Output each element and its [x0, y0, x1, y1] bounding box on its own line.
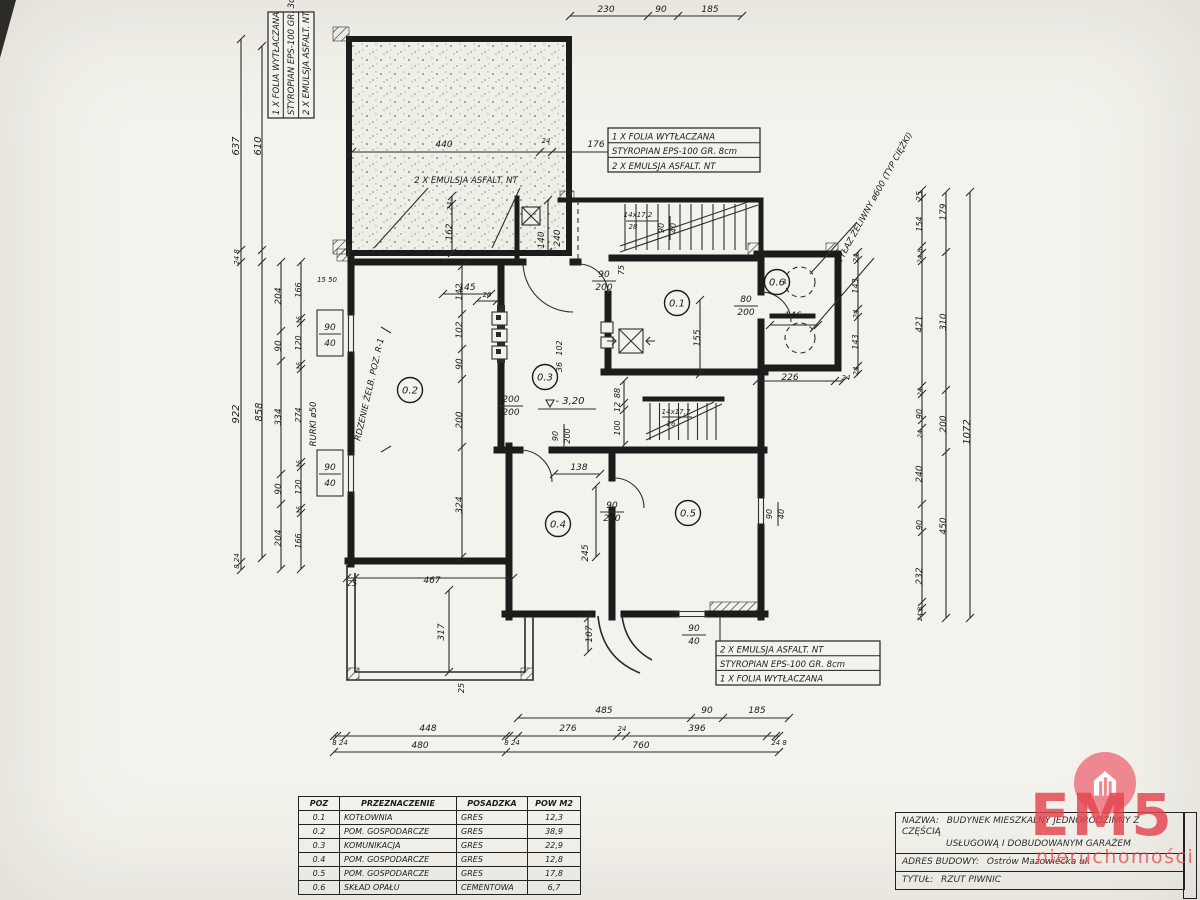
dim-label: 90 — [655, 5, 667, 15]
dim-label: 40 — [324, 339, 336, 349]
table-header: POZ — [299, 797, 340, 811]
note-line: STYROPIAN EPS-100 GR. 8cm — [720, 660, 845, 670]
dim-label: 25 — [347, 579, 357, 588]
dim-label: 155 — [693, 329, 703, 346]
dim-label: 24 8 — [916, 249, 924, 263]
dim-label: 450 — [939, 517, 949, 534]
table-cell: 0.5 — [299, 867, 340, 881]
dim-label: 396 — [688, 724, 705, 734]
dim-label: 200 — [603, 514, 620, 524]
dim-label: 40 — [777, 509, 786, 519]
floor-plan-drawing: 1 X FOLIA WYTŁACZANA STYROPIAN EPS-100 G… — [0, 0, 1200, 900]
garage-note: 2 X EMULSJA ASFALT. NT — [414, 176, 518, 186]
dim-label: 226 — [781, 373, 798, 383]
dim-label: 8 24 — [332, 739, 348, 747]
dim-label: 120 — [294, 335, 303, 350]
dim-label: 485 — [595, 706, 612, 716]
table-cell: GRES — [457, 839, 528, 853]
table-cell: GRES — [457, 867, 528, 881]
dim-label: 24 — [852, 310, 860, 319]
dim-label: 334 — [274, 408, 284, 425]
dim-label: 28 — [629, 223, 638, 231]
table-cell: CEMENTOWA — [457, 881, 528, 895]
dim-label: 120 — [294, 479, 303, 494]
table-cell: 12,3 — [528, 811, 581, 825]
manhole-circle — [785, 323, 815, 353]
dim-label: 15 50 — [317, 276, 338, 284]
dim-label: 467 — [423, 576, 440, 586]
nazwa-label: NAZWA: — [902, 816, 939, 826]
note-line: 2 X EMULSJA ASFALT. NT — [720, 646, 824, 656]
dim-label: 90 — [688, 624, 700, 634]
dim-label: 88 — [613, 388, 622, 398]
dim-label: 440 — [435, 140, 452, 150]
dim-label: 90 — [324, 323, 336, 333]
table-cell: KOTŁOWNIA — [340, 811, 457, 825]
table-header: POSADZKA — [457, 797, 528, 811]
table-cell: 0.6 — [299, 881, 340, 895]
table-cell: 22,9 — [528, 839, 581, 853]
dim-label: 922 — [231, 404, 242, 423]
em5-watermark-text: EM5 — [1030, 786, 1174, 844]
dim-label: 480 — [411, 741, 428, 751]
dim-label: 90 — [551, 431, 560, 441]
dim-label: 80 — [740, 295, 752, 305]
dim-label: 200 — [595, 283, 612, 293]
dim-label: 90 — [701, 706, 713, 716]
note-top-left: 1 X FOLIA WYTŁACZANA STYROPIAN EPS-100 G… — [268, 0, 314, 118]
dim-label: 90 — [274, 483, 284, 495]
table-cell: GRES — [457, 853, 528, 867]
table-cell: 38,9 — [528, 825, 581, 839]
em5-watermark-subtitle: nieruchomości — [1036, 846, 1194, 868]
table-cell: KOMUNIKACJA — [340, 839, 457, 853]
dim-label: 24 8 — [233, 249, 241, 265]
dim-label: 200 — [939, 415, 949, 432]
note-line: STYROPIAN EPS-100 GR. 8cm — [612, 147, 737, 157]
tytul-label: TYTUŁ: — [902, 875, 933, 885]
dim-label: 176 — [587, 140, 604, 150]
dim-label: 230 — [597, 5, 614, 15]
dim-label: 200 — [502, 395, 519, 405]
table-cell: SKŁAD OPAŁU — [340, 881, 457, 895]
dim-label: 25 — [457, 683, 466, 693]
table-cell: 0.3 — [299, 839, 340, 853]
fraction-bars — [319, 216, 778, 635]
room-schedule-table: POZPRZEZNACZENIEPOSADZKAPOW M2 0.1KOTŁOW… — [298, 796, 581, 895]
table-cell: POM. GOSPODARCZE — [340, 853, 457, 867]
dim-label: 310 — [939, 313, 949, 330]
dim-label: 204 — [274, 529, 284, 546]
room-label-0.5: 0.5 — [680, 509, 696, 520]
dim-label: 185 — [748, 706, 765, 716]
title-block-title-row: TYTUŁ: RZUT PIWNIC — [896, 872, 1184, 889]
dim-label: 8 24 — [233, 553, 241, 569]
dim-label: 12 — [613, 402, 622, 412]
dim-label: 858 — [254, 402, 265, 421]
table-header: PRZEZNACZENIE — [340, 797, 457, 811]
dim-label: 90 — [455, 358, 465, 370]
dim-label: 102 — [555, 340, 564, 355]
terrace-outline — [347, 565, 652, 680]
dim-label: 154 — [915, 216, 924, 231]
room-label-0.6: 0.6 — [769, 278, 785, 289]
adres-label: ADRES BUDOWY: — [902, 857, 979, 867]
note-bottom: 2 X EMULSJA ASFALT. NT STYROPIAN EPS-100… — [716, 641, 880, 685]
dim-label: 421 — [915, 315, 925, 332]
rdzenie-label: RDZENIE ŻELB. POZ. R-1 — [352, 337, 386, 442]
dim-label: 20 — [483, 291, 492, 299]
dim-label: 245 — [581, 544, 591, 561]
dim-label: 166 — [294, 533, 303, 548]
dim-label: 143 — [851, 278, 860, 293]
scanned-floor-plan-page: 1 X FOLIA WYTŁACZANA STYROPIAN EPS-100 G… — [0, 0, 1200, 900]
dim-label: 162 — [445, 223, 455, 240]
dim-label: 14x17,2 — [624, 211, 653, 219]
table-row: 0.5POM. GOSPODARCZEGRES17,8 — [299, 867, 581, 881]
dim-label: 102 — [455, 321, 465, 338]
rurki-label: RURKI ø50 — [309, 402, 319, 447]
table-row: 0.3KOMUNIKACJAGRES22,9 — [299, 839, 581, 853]
table-row: 0.2POM. GOSPODARCZEGRES38,9 — [299, 825, 581, 839]
dim-label: 24 — [618, 725, 627, 733]
dim-label: 200 — [455, 411, 465, 428]
table-cell: 0.4 — [299, 853, 340, 867]
dim-label: 24 8 — [771, 739, 787, 747]
note-line: 1 X FOLIA WYTŁACZANA — [720, 675, 823, 685]
dim-label: 204 — [274, 287, 284, 304]
table-row: 0.6SKŁAD OPAŁUCEMENTOWA6,7 — [299, 881, 581, 895]
table-cell: GRES — [457, 825, 528, 839]
dim-label: 1072 — [962, 419, 973, 444]
dim-label: 25 — [915, 191, 924, 201]
table-row: 0.4POM. GOSPODARCZEGRES12,8 — [299, 853, 581, 867]
dim-label: 200 — [502, 408, 519, 418]
dim-label: 15 — [295, 362, 303, 370]
dim-label: 90 — [657, 223, 666, 233]
dim-label: 24 — [446, 202, 454, 211]
dim-label: 24 — [852, 367, 860, 376]
room-label-0.4: 0.4 — [550, 520, 566, 531]
table-cell: 12,8 — [528, 853, 581, 867]
dim-label: 200 — [737, 308, 754, 318]
dim-label: 232 — [915, 567, 925, 584]
table-cell: 6,7 — [528, 881, 581, 895]
note-line: 1 X FOLIA WYTŁACZANA — [612, 133, 715, 143]
note-top-mid: 1 X FOLIA WYTŁACZANA STYROPIAN EPS-100 G… — [608, 128, 760, 172]
dim-label: 610 — [253, 136, 264, 155]
room-label-0.2: 0.2 — [402, 386, 418, 397]
level-label: - 3,20 — [555, 396, 584, 407]
dim-label: 24 — [916, 388, 924, 396]
table-cell: 17,8 — [528, 867, 581, 881]
dim-label: 15 — [295, 506, 303, 514]
dim-label: 24 — [542, 137, 551, 145]
dim-label: 276 — [559, 724, 576, 734]
dim-label: 324 — [455, 496, 465, 513]
dim-label: 90 — [915, 520, 924, 530]
dimension-labels: 23090185440241762 X EMULSJA ASFALT. NT24… — [231, 5, 973, 751]
dim-label: 26 — [667, 420, 676, 428]
walls — [348, 254, 838, 617]
dim-label: 90 — [915, 409, 924, 419]
dim-label: 90 — [765, 509, 774, 519]
dim-label: 146 — [784, 311, 801, 321]
dim-label: 24 8 — [916, 607, 924, 621]
note-line: 1 X FOLIA WYTŁACZANA — [272, 12, 282, 115]
note-line: STYROPIAN EPS-100 GR. 3cm — [287, 0, 297, 115]
table-cell: 0.2 — [299, 825, 340, 839]
dim-label: 15 — [295, 460, 303, 468]
table-cell: GRES — [457, 811, 528, 825]
dim-label: 166 — [294, 282, 303, 297]
dim-label: 14x17,7 — [662, 408, 691, 416]
dim-label: 240 — [915, 465, 925, 482]
dim-label: 317 — [437, 623, 447, 640]
dim-label: 90 — [324, 463, 336, 473]
table-cell: POM. GOSPODARCZE — [340, 825, 457, 839]
dim-label: 8 24 — [504, 739, 520, 747]
room-label-0.1: 0.1 — [669, 299, 685, 310]
dim-label: 100 — [613, 420, 622, 435]
table-row: 0.1KOTŁOWNIAGRES12,3 — [299, 811, 581, 825]
windows — [317, 310, 764, 617]
dim-label: 448 — [419, 724, 436, 734]
dim-label: 140 — [537, 231, 547, 248]
dim-label: 24 — [852, 254, 860, 263]
dim-label: 143 — [851, 334, 860, 349]
dim-label: 40 — [324, 479, 336, 489]
note-line: 2 X EMULSJA ASFALT. NT — [612, 162, 716, 172]
room-label-0.3: 0.3 — [537, 373, 553, 384]
dim-label: 40 — [688, 637, 700, 647]
dim-label: 15 — [295, 316, 303, 324]
dim-label: 637 — [231, 136, 242, 156]
dim-label: 75 — [617, 265, 626, 275]
dim-label: 24 — [842, 374, 851, 382]
dim-label: 145 — [458, 283, 475, 293]
dim-label: 90 — [274, 340, 284, 352]
table-cell: POM. GOSPODARCZE — [340, 867, 457, 881]
dim-label: 90 — [598, 270, 610, 280]
table-header-row: POZPRZEZNACZENIEPOSADZKAPOW M2 — [299, 797, 581, 811]
wylaz-label: WYŁAZ ŻELIWNY ø600 (TYP CIĘŻKI) — [833, 130, 916, 267]
table-cell: 0.1 — [299, 811, 340, 825]
dim-label: 240 — [553, 229, 563, 246]
dim-label: 107 — [585, 625, 595, 642]
dim-label: 185 — [701, 5, 718, 15]
table-header: POW M2 — [528, 797, 581, 811]
dim-label: 138 — [570, 463, 587, 473]
dim-label: 90 — [606, 501, 618, 511]
tytul-value: RZUT PIWNIC — [941, 875, 1001, 885]
stair-top — [620, 202, 758, 252]
dim-label: 200 — [563, 428, 572, 443]
dim-label: 179 — [939, 203, 949, 220]
dim-label: 24 — [916, 430, 924, 438]
dim-label: 40 — [669, 223, 678, 233]
dim-label: 274 — [294, 407, 303, 422]
note-line: 2 X EMULSJA ASFALT. NT — [302, 11, 312, 115]
dim-label: 760 — [632, 741, 649, 751]
